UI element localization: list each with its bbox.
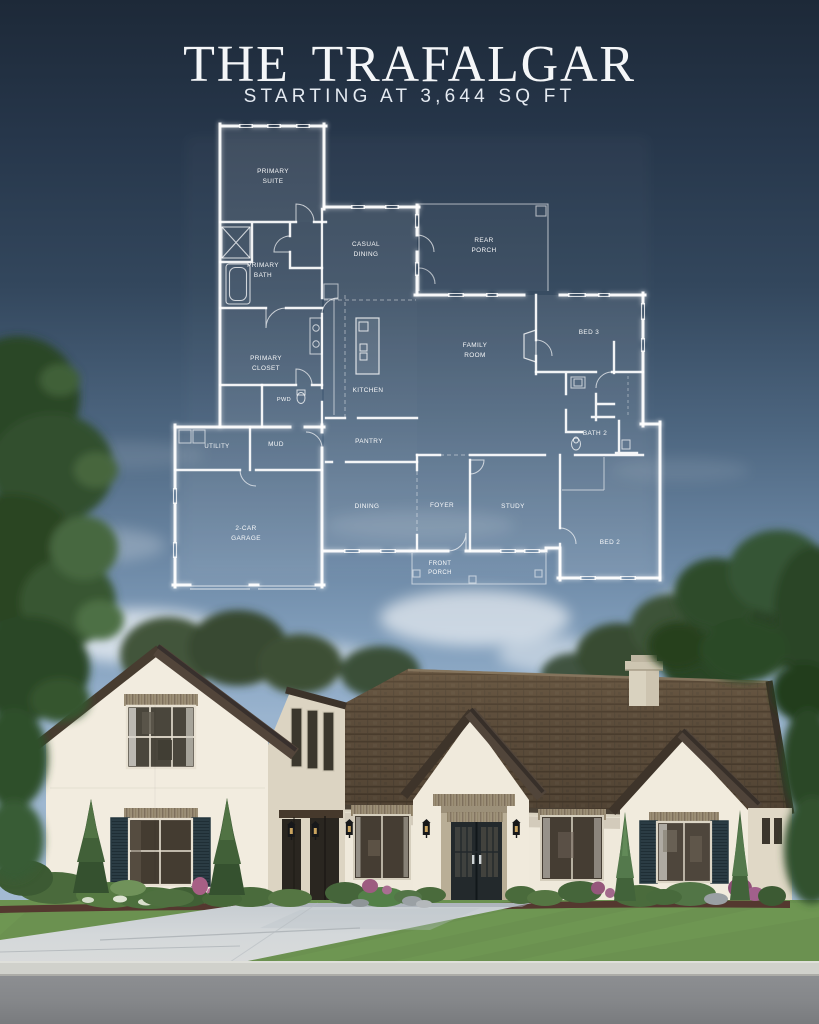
svg-text:PWD: PWD (277, 397, 291, 403)
svg-text:GARAGE: GARAGE (231, 535, 261, 542)
svg-text:FRONT: FRONT (429, 561, 452, 567)
svg-text:DINING: DINING (355, 503, 380, 510)
svg-text:BED 3: BED 3 (579, 329, 600, 336)
svg-text:FAMILY: FAMILY (463, 342, 488, 349)
svg-text:BATH 2: BATH 2 (583, 430, 607, 437)
svg-text:2-CAR: 2-CAR (235, 525, 256, 532)
svg-text:BED 2: BED 2 (600, 539, 621, 546)
svg-text:BATH: BATH (254, 272, 272, 279)
svg-text:KITCHEN: KITCHEN (353, 387, 384, 394)
svg-text:DINING: DINING (354, 251, 379, 258)
svg-text:UTILITY: UTILITY (204, 444, 229, 450)
svg-text:FOYER: FOYER (430, 502, 454, 509)
svg-text:CLOSET: CLOSET (252, 365, 280, 372)
svg-text:PORCH: PORCH (471, 247, 496, 254)
svg-text:CASUAL: CASUAL (352, 241, 380, 248)
svg-text:STUDY: STUDY (501, 503, 525, 510)
svg-text:PRIMARY: PRIMARY (257, 168, 289, 175)
svg-text:MUD: MUD (268, 441, 284, 448)
svg-text:PANTRY: PANTRY (355, 438, 383, 445)
svg-text:PRIMARY: PRIMARY (247, 262, 279, 269)
svg-text:ROOM: ROOM (464, 352, 485, 359)
svg-text:SUITE: SUITE (263, 178, 284, 185)
svg-text:REAR: REAR (474, 237, 493, 244)
svg-text:PORCH: PORCH (428, 570, 452, 576)
svg-text:PRIMARY: PRIMARY (250, 355, 282, 362)
